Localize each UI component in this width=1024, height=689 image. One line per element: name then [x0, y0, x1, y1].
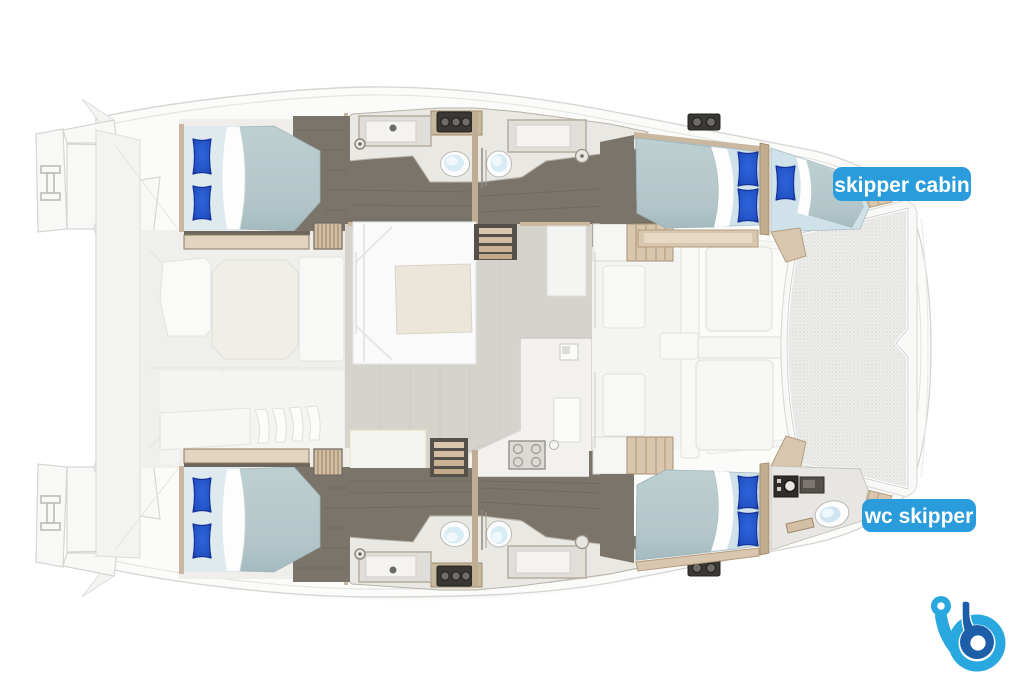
svg-text:skipper cabin: skipper cabin — [834, 174, 969, 197]
svg-text:wc skipper: wc skipper — [864, 505, 974, 528]
